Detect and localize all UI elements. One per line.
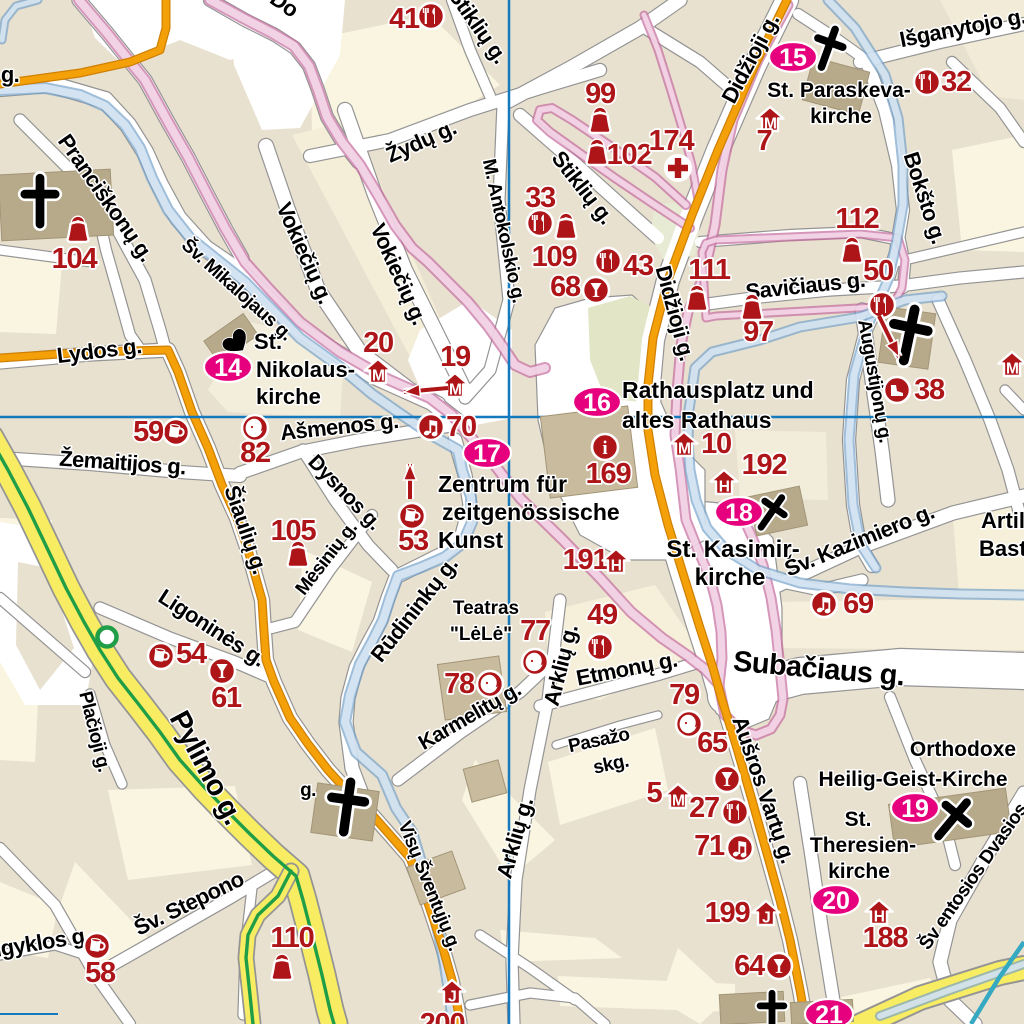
svg-text:Nikolaus-: Nikolaus- xyxy=(256,357,355,382)
svg-text:20: 20 xyxy=(822,887,850,915)
svg-text:Theresien-: Theresien- xyxy=(810,834,916,857)
svg-text:15: 15 xyxy=(779,44,807,72)
svg-text:200: 200 xyxy=(420,1008,465,1024)
svg-text:54: 54 xyxy=(176,638,207,670)
svg-text:H: H xyxy=(719,479,730,496)
svg-text:19: 19 xyxy=(440,341,471,373)
svg-text:14: 14 xyxy=(214,354,242,382)
svg-text:St.: St. xyxy=(254,329,282,354)
svg-text:Teatras: Teatras xyxy=(453,598,519,619)
svg-text:102: 102 xyxy=(607,139,652,171)
svg-text:"LėLė": "LėLė" xyxy=(450,624,512,645)
svg-text:192: 192 xyxy=(742,449,787,481)
svg-text:St. Kasimir-: St. Kasimir- xyxy=(666,536,799,563)
svg-text:112: 112 xyxy=(835,203,878,235)
svg-text:altes Rathaus: altes Rathaus xyxy=(622,407,772,433)
svg-text:199: 199 xyxy=(705,897,751,929)
svg-text:109: 109 xyxy=(532,241,578,273)
svg-text:Artile: Artile xyxy=(981,508,1024,533)
svg-text:78: 78 xyxy=(444,668,475,700)
svg-text:43: 43 xyxy=(623,250,654,282)
svg-text:174: 174 xyxy=(649,125,695,157)
svg-text:64: 64 xyxy=(734,950,765,982)
svg-text:M: M xyxy=(449,382,461,399)
svg-text:21: 21 xyxy=(815,1001,843,1024)
svg-text:Orthodoxe: Orthodoxe xyxy=(910,738,1016,761)
svg-text:77: 77 xyxy=(520,615,550,647)
svg-text:St. Paraskeva-: St. Paraskeva- xyxy=(767,79,911,102)
svg-text:7: 7 xyxy=(757,125,772,157)
svg-text:65: 65 xyxy=(697,727,728,759)
svg-text:Rathausplatz und: Rathausplatz und xyxy=(622,377,814,403)
svg-text:kirche: kirche xyxy=(256,384,321,409)
svg-text:J: J xyxy=(448,989,456,1006)
svg-text:70: 70 xyxy=(446,411,476,443)
svg-text:27: 27 xyxy=(689,792,719,824)
svg-text:32: 32 xyxy=(941,66,971,98)
svg-text:53: 53 xyxy=(398,525,429,557)
svg-text:5: 5 xyxy=(647,777,663,809)
svg-text:kirche: kirche xyxy=(828,860,890,883)
svg-text:Heilig-Geist-Kirche: Heilig-Geist-Kirche xyxy=(818,768,1007,791)
svg-text:H: H xyxy=(611,558,622,575)
svg-text:Zentrum für: Zentrum für xyxy=(438,471,567,497)
svg-text:zeitgenössische: zeitgenössische xyxy=(442,499,620,525)
svg-text:i: i xyxy=(602,438,607,459)
svg-text:104: 104 xyxy=(52,243,98,275)
svg-text:20: 20 xyxy=(363,327,393,359)
svg-text:79: 79 xyxy=(669,679,700,711)
svg-text:J: J xyxy=(762,910,770,927)
svg-text:169: 169 xyxy=(586,458,632,490)
svg-text:61: 61 xyxy=(211,682,242,714)
svg-text:kirche: kirche xyxy=(810,105,872,128)
svg-text:kirche: kirche xyxy=(695,564,766,591)
svg-text:10: 10 xyxy=(701,428,731,460)
svg-text:17: 17 xyxy=(473,440,501,468)
svg-text:19: 19 xyxy=(901,795,929,823)
svg-text:188: 188 xyxy=(863,922,909,954)
svg-text:St.: St. xyxy=(845,808,872,831)
svg-text:M: M xyxy=(1006,361,1018,378)
svg-text:g.: g. xyxy=(1,62,19,87)
svg-text:49: 49 xyxy=(587,599,618,631)
svg-text:71: 71 xyxy=(694,830,725,862)
svg-text:Kunst: Kunst xyxy=(438,527,504,553)
svg-text:g.: g. xyxy=(300,780,316,801)
svg-text:59: 59 xyxy=(133,416,164,448)
svg-text:38: 38 xyxy=(914,374,945,406)
svg-text:111: 111 xyxy=(688,254,731,286)
svg-text:82: 82 xyxy=(240,437,270,469)
svg-text:69: 69 xyxy=(843,588,874,620)
svg-text:M: M xyxy=(672,793,684,810)
svg-text:58: 58 xyxy=(85,957,116,989)
svg-text:50: 50 xyxy=(863,255,893,287)
svg-text:68: 68 xyxy=(550,271,581,303)
svg-text:Bastė: Bastė xyxy=(979,536,1024,561)
svg-text:16: 16 xyxy=(583,389,611,417)
svg-text:M: M xyxy=(372,368,384,385)
svg-text:110: 110 xyxy=(270,922,313,954)
svg-text:41: 41 xyxy=(389,3,420,35)
svg-text:18: 18 xyxy=(725,499,753,527)
svg-text:M: M xyxy=(678,441,690,458)
svg-text:99: 99 xyxy=(585,78,616,110)
